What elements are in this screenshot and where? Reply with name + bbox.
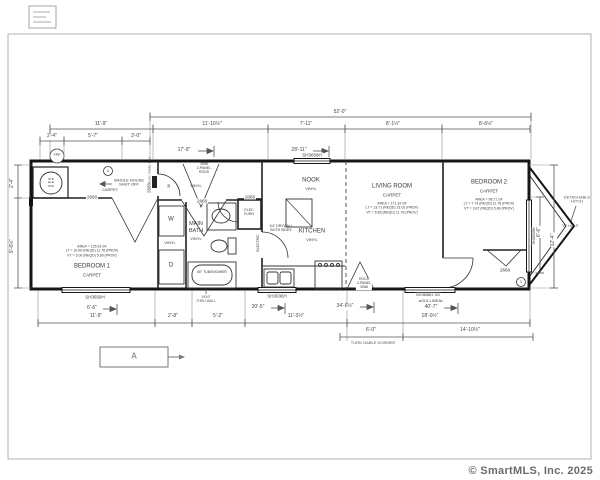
electric-label: ELECTRIC bbox=[257, 234, 261, 251]
kitchen-name: KITCHEN bbox=[299, 229, 325, 236]
corner-stamp bbox=[29, 6, 56, 28]
water-heater-label: STD ELE W/H bbox=[48, 178, 54, 188]
dim-sub-2: 5'-7" bbox=[87, 134, 99, 140]
bedroom1-floor: CARPET bbox=[83, 272, 101, 277]
nook-floor: VINYL bbox=[305, 187, 317, 191]
section-a-label: A bbox=[131, 353, 136, 362]
living-name: LIVING ROOM bbox=[372, 184, 412, 191]
dim-dormer: 6'-0" bbox=[365, 328, 377, 334]
toilet-bowl bbox=[211, 240, 227, 252]
bedroom2-stats: AREA = 98.71 SF LT = 7.74 (REQD) 11.78 (… bbox=[464, 197, 515, 210]
elec-furn-label: ELEC FURN bbox=[243, 209, 255, 217]
window-label-sh3036h: SH3036H bbox=[266, 293, 288, 298]
tub bbox=[188, 262, 236, 288]
door-label-2868: 2868 bbox=[196, 198, 208, 203]
window-label-sh3658h-nook: SH3658H bbox=[301, 152, 323, 157]
dim-top-overall: 52'-0" bbox=[333, 110, 348, 116]
detachable-hitch-label: DETACHABLE HITCH bbox=[564, 196, 590, 205]
section-marker bbox=[100, 347, 185, 367]
nook-name: NOOK bbox=[302, 178, 320, 185]
drywall-note: 1/4" DRYWALL BOTH SIDES bbox=[269, 225, 293, 233]
dim-bot-5: 18'-0½" bbox=[421, 314, 440, 320]
door-label-living: RODS 2-PANEL 3068 bbox=[356, 278, 372, 290]
bedroom1-name: BEDROOM 1 bbox=[74, 264, 110, 271]
dim-leader-20-5: 20'-5" bbox=[251, 305, 266, 311]
watermark: © SmartMLS, Inc. 2025 bbox=[455, 463, 597, 479]
bedroom2-closet-swing bbox=[487, 250, 521, 266]
bedroom1-stats: AREA = 125.03 SF LT = 10.00 (REQD) 11.78… bbox=[66, 244, 119, 257]
dryer-label: D bbox=[169, 263, 173, 270]
door-label-hall-closet: 3068 2-PANEL RODS bbox=[196, 163, 212, 175]
dim-sub-1: 2'-4" bbox=[46, 134, 58, 140]
door-label-2068: 2068 bbox=[244, 194, 256, 199]
kitchen-door-arc bbox=[262, 232, 288, 258]
dim-right-2: 12'-4" bbox=[551, 233, 557, 248]
dim-leader-40-7: 40'-7" bbox=[424, 305, 439, 311]
half-label: "A" HALF bbox=[562, 224, 579, 228]
dim-bot-4: 11'-3½" bbox=[287, 314, 306, 320]
mainbath-name-2: BATH bbox=[189, 228, 203, 234]
living-stats: AREA = 171.32 SF LT = 13.71 (REQD) 23.02… bbox=[366, 201, 419, 214]
hall-width-label: 36 bbox=[168, 184, 172, 188]
plan-linework bbox=[0, 0, 600, 480]
dim-right-1: 6'-6" bbox=[537, 226, 543, 238]
elec-panel-label: ELEC. PANEL BOX bbox=[148, 157, 151, 183]
bedroom2-name: BEDROOM 2 bbox=[471, 180, 507, 187]
dim-top-1: 11'-9" bbox=[94, 122, 108, 128]
panel-box bbox=[152, 176, 157, 188]
bedroom2-floor: CARPET bbox=[480, 188, 498, 193]
keynote1-label-b: 1 bbox=[520, 280, 522, 284]
window-label-sg-lineal: w/3.5 LINEAL bbox=[418, 299, 444, 303]
dim-left-2: 9'-6½" bbox=[10, 238, 16, 254]
washer-label: W bbox=[168, 217, 174, 224]
mainbath-name-1: MAIN bbox=[189, 221, 203, 227]
mainbath-floor: VINYL bbox=[190, 237, 202, 241]
dim-sub-3: 3'-0" bbox=[130, 134, 142, 140]
bedroom1-door-swing bbox=[112, 198, 158, 242]
dim-top-2: 11'-10½" bbox=[201, 122, 222, 128]
floor-plan-sheet: 52'-0" 11'-9" 11'-10½" 7'-11" 8'-1½" 8'-… bbox=[0, 0, 600, 480]
dim-bot-1: 11'-9" bbox=[89, 314, 103, 320]
dim-leader-17-9: 17'-9" bbox=[177, 148, 192, 154]
entry-floor: CARPET bbox=[102, 188, 118, 192]
dim-top-4: 8'-1½" bbox=[385, 122, 401, 128]
hall-floor: VINYL bbox=[190, 184, 202, 188]
dim-bot2-2: 14'-10½" bbox=[459, 328, 481, 334]
toilet-tank bbox=[228, 238, 236, 254]
turn-gable-dormer-note: TURN GABLE DORMER bbox=[351, 341, 395, 345]
dim-leader-6-6: 6'-6" bbox=[86, 306, 98, 312]
window-label-sh3658h-sg: SH3658H SG bbox=[415, 293, 441, 297]
fpp-label: FPP bbox=[54, 154, 61, 158]
door-label-2668-bed2: 2668 bbox=[499, 267, 511, 272]
keynote1-label: 1 bbox=[107, 169, 109, 173]
tub-label: 60" TUB/SHOWER bbox=[197, 271, 227, 275]
lavatory-sink bbox=[212, 209, 230, 223]
vent-thru-wall-note: VENT THRU WALL bbox=[196, 296, 216, 304]
dim-top-5: 8'-6½" bbox=[478, 122, 494, 128]
living-floor: CARPET bbox=[383, 192, 401, 197]
dim-top-3: 7'-11" bbox=[299, 122, 313, 128]
kitchen-floor: VINYL bbox=[306, 238, 318, 242]
dim-bot-2: 2'-8" bbox=[167, 314, 179, 320]
window-label-sh3658h-bed1: SH3658H bbox=[84, 294, 106, 299]
vanity bbox=[207, 203, 236, 230]
dim-left-1: 2'-4" bbox=[10, 177, 16, 189]
tub-inner bbox=[192, 265, 232, 285]
range bbox=[315, 261, 342, 289]
dim-bot-3: 5'-2" bbox=[212, 314, 224, 320]
laundry-floor: VINYL bbox=[164, 241, 176, 245]
dim-leader-34-6: 34'-6½" bbox=[336, 304, 355, 310]
door-label-2668-entry: 2668 bbox=[146, 182, 151, 194]
door-label-2668-bed1: 2668 bbox=[86, 194, 98, 199]
bedroom2-door-arc bbox=[443, 258, 473, 288]
left-wall-sill bbox=[29, 197, 33, 206]
window-label-sh3658h-side: SH3658H bbox=[532, 226, 536, 245]
whole-house-shutoff-label: WHOLE HOUSE SHUT OFF bbox=[114, 179, 144, 188]
